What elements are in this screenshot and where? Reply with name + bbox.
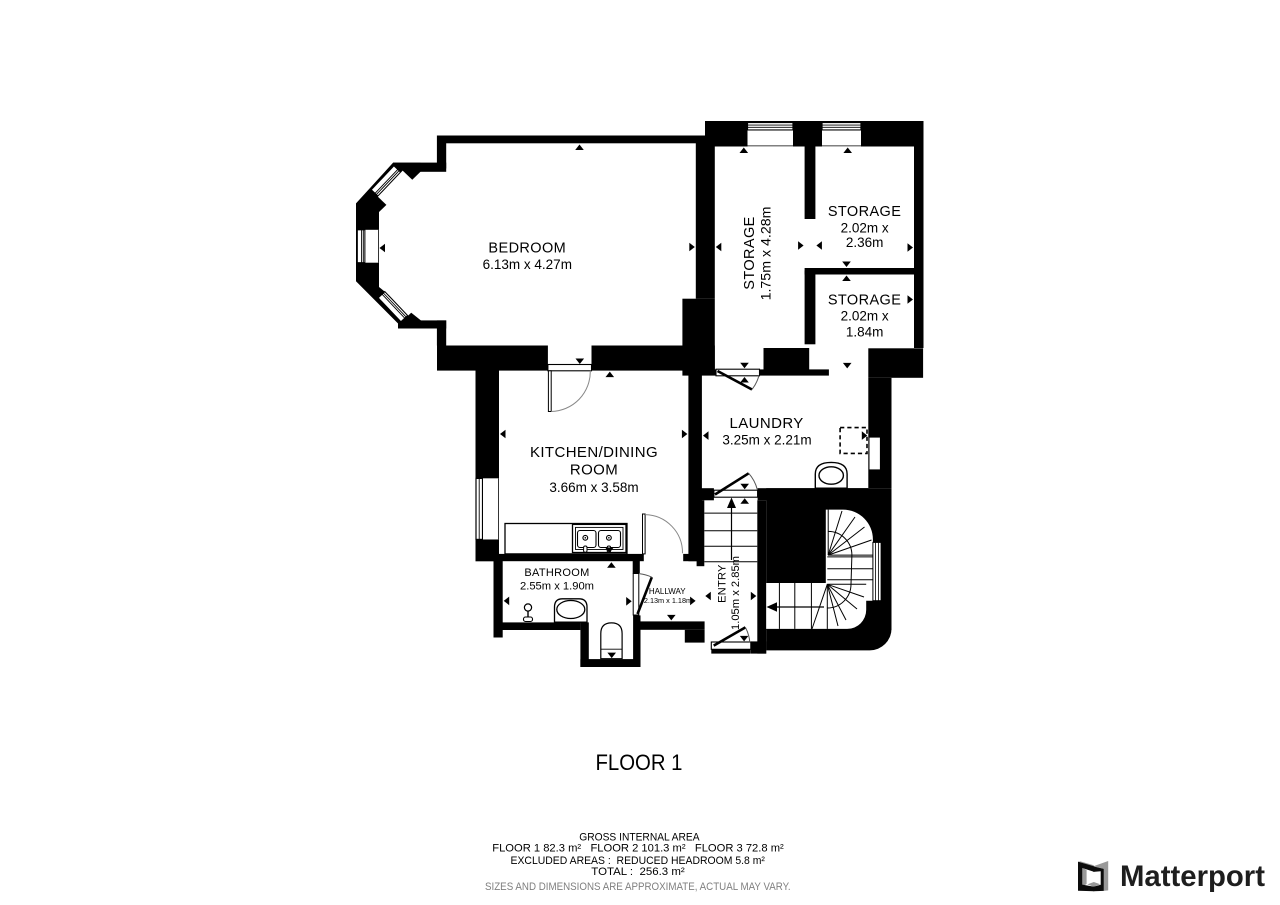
svg-text:ENTRY: ENTRY bbox=[717, 564, 729, 603]
svg-text:2.02m x: 2.02m x bbox=[841, 309, 889, 324]
svg-text:EXCLUDED AREAS : REDUCED HEAD: EXCLUDED AREAS : REDUCED HEADROOM 5.8 m² bbox=[511, 855, 766, 867]
svg-text:FLOOR 1: FLOOR 1 bbox=[596, 750, 683, 775]
svg-text:STORAGE: STORAGE bbox=[742, 216, 758, 289]
svg-text:BATHROOM: BATHROOM bbox=[524, 567, 589, 579]
svg-text:3.25m x 2.21m: 3.25m x 2.21m bbox=[722, 433, 811, 448]
svg-text:2.55m x 1.90m: 2.55m x 1.90m bbox=[520, 581, 594, 593]
svg-text:2.02m x: 2.02m x bbox=[841, 221, 889, 236]
svg-text:KITCHEN/DINING: KITCHEN/DINING bbox=[530, 444, 658, 461]
svg-text:1.84m: 1.84m bbox=[846, 325, 884, 340]
svg-text:Matterport: Matterport bbox=[1120, 860, 1265, 893]
svg-text:2.13m x 1.18m: 2.13m x 1.18m bbox=[644, 596, 692, 605]
svg-text:SIZES AND DIMENSIONS ARE APPRO: SIZES AND DIMENSIONS ARE APPROXIMATE, AC… bbox=[485, 881, 791, 893]
svg-text:3.66m x 3.58m: 3.66m x 3.58m bbox=[549, 480, 638, 495]
svg-text:FLOOR 1 82.3 m² FLOOR 2 101.: FLOOR 1 82.3 m² FLOOR 2 101.3 m² FLOOR 3… bbox=[492, 843, 784, 855]
svg-text:BEDROOM: BEDROOM bbox=[488, 241, 566, 257]
svg-text:ROOM: ROOM bbox=[570, 462, 618, 479]
svg-text:2.36m: 2.36m bbox=[846, 235, 884, 250]
svg-text:6.13m x 4.27m: 6.13m x 4.27m bbox=[483, 257, 572, 272]
svg-text:STORAGE: STORAGE bbox=[828, 293, 901, 309]
svg-text:TOTAL : 256.3 m²: TOTAL : 256.3 m² bbox=[591, 866, 685, 878]
svg-text:LAUNDRY: LAUNDRY bbox=[729, 415, 803, 432]
svg-text:STORAGE: STORAGE bbox=[828, 204, 901, 220]
svg-text:1.75m x 4.28m: 1.75m x 4.28m bbox=[759, 207, 775, 301]
svg-text:1.05m x 2.85m: 1.05m x 2.85m bbox=[730, 556, 742, 630]
svg-text:HALLWAY: HALLWAY bbox=[649, 587, 686, 596]
